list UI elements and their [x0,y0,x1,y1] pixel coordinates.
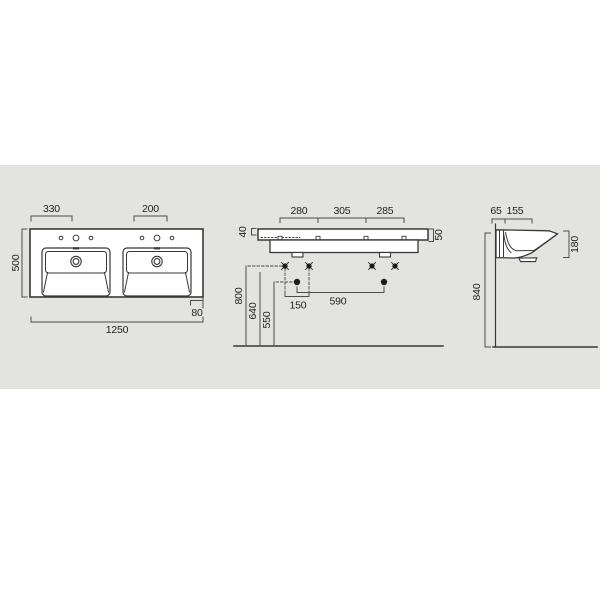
dim-label-840: 840 [471,283,483,300]
dim-label-65: 65 [490,205,502,217]
front-top-chain [280,218,404,223]
technical-drawing-sheet: 330 200 500 1250 80 [0,0,600,600]
fixing-hole-icon [392,263,399,270]
dim-label-40: 40 [237,226,249,238]
dim-label-305: 305 [334,205,351,217]
basin-outline-top [30,229,203,297]
wall-fixing-holes [282,263,399,285]
mounting-height-bracket [485,233,491,347]
fixing-hole-icon [369,263,376,270]
lower-fixing-dot [294,279,299,284]
basin-section-profile [496,230,558,262]
drain-boss-left [292,253,303,258]
dim-label-200: 200 [142,203,159,215]
dim-label-155: 155 [507,205,524,217]
dim-label-590: 590 [330,296,347,308]
top-view: 330 200 500 1250 80 [10,203,203,336]
dim-label-330: 330 [43,203,60,215]
dim-label-180: 180 [569,236,581,253]
fixing-hole-icon [282,263,289,270]
dim-label-550: 550 [261,311,273,328]
drain-boss-side [519,258,537,262]
side-top-chain [492,219,532,223]
dim-label-150: 150 [290,300,307,312]
dim-label-80: 80 [191,307,203,319]
fixing-hole-icon [306,263,313,270]
dim-label-50: 50 [433,229,445,241]
front-view: 280 305 285 40 50 800 640 550 [233,205,445,346]
dim-label-800: 800 [233,287,245,304]
front-top-chain-labels: 280 305 285 [291,205,394,217]
drain-boss-right [380,253,391,258]
dim-label-285: 285 [377,205,394,217]
lower-fixing-dot [381,279,386,284]
dashed-leader-lines [248,266,309,295]
washbasin-dimension-drawing: 330 200 500 1250 80 [0,0,600,600]
side-view: 65 155 840 180 [471,205,597,347]
dim-label-280: 280 [291,205,308,217]
dim-label-500: 500 [10,254,22,271]
basin-body-front [270,240,418,253]
dim-label-640: 640 [247,302,259,319]
dim-label-1250: 1250 [106,324,129,336]
